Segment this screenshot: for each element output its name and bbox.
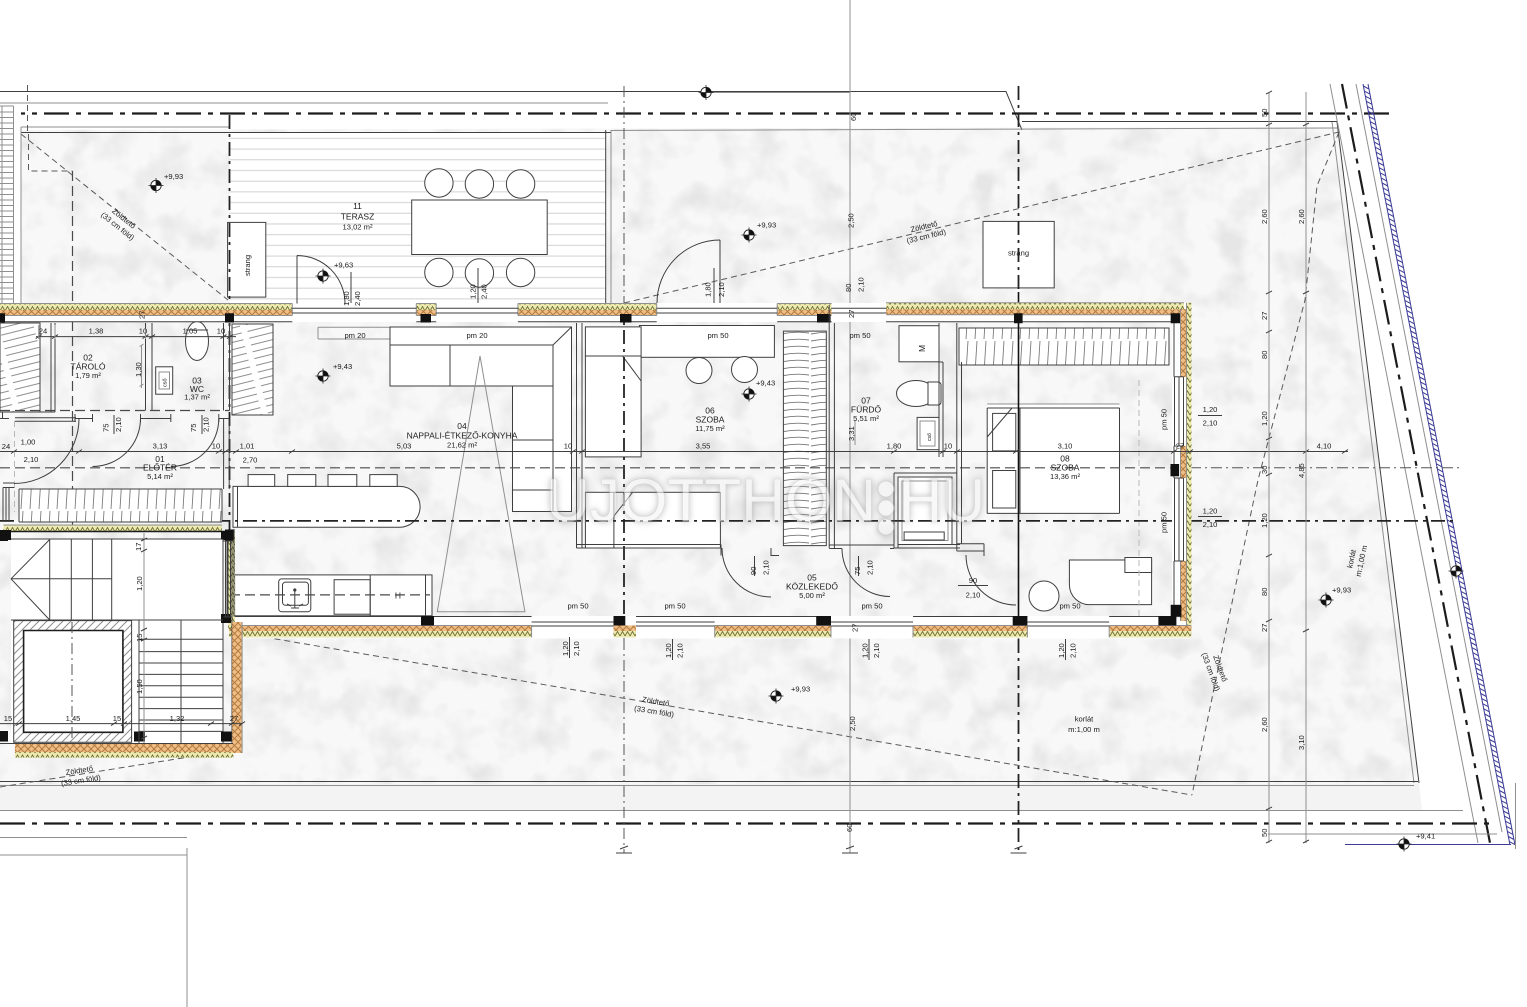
svg-text:80: 80 [844, 284, 853, 292]
svg-text:1,20: 1,20 [135, 576, 144, 591]
svg-text:75: 75 [189, 424, 198, 432]
svg-text:50: 50 [1260, 829, 1269, 837]
svg-text:27: 27 [1260, 312, 1269, 320]
svg-text:60: 60 [845, 824, 854, 832]
svg-text:3,55: 3,55 [696, 442, 711, 451]
svg-text:pm 50: pm 50 [567, 602, 588, 611]
svg-text:15: 15 [4, 714, 12, 723]
svg-text:3,13: 3,13 [153, 442, 168, 451]
svg-text:strang: strang [243, 255, 252, 276]
svg-text:2,10: 2,10 [1203, 520, 1218, 529]
svg-text:1,37 m²: 1,37 m² [184, 393, 210, 402]
svg-text:2,50: 2,50 [848, 716, 857, 731]
svg-text:pm 50: pm 50 [1160, 409, 1169, 430]
svg-text:1,20: 1,20 [1260, 411, 1269, 426]
svg-text:27: 27 [138, 311, 147, 319]
svg-text:1,20: 1,20 [1057, 643, 1066, 658]
svg-text:2,10: 2,10 [676, 643, 685, 658]
svg-text:2,10: 2,10 [857, 277, 866, 292]
svg-text:korlát: korlát [1075, 715, 1094, 724]
svg-text:50: 50 [1260, 109, 1269, 117]
svg-text:+9,93: +9,93 [164, 172, 183, 181]
svg-text:+9,93: +9,93 [791, 685, 810, 694]
svg-text:1,50: 1,50 [135, 679, 144, 694]
svg-text:90: 90 [749, 567, 758, 575]
svg-text:3,10: 3,10 [1297, 735, 1306, 750]
svg-text:2,10: 2,10 [966, 591, 981, 600]
svg-text:pm 20: pm 20 [466, 331, 487, 340]
svg-text:3,31: 3,31 [847, 426, 856, 441]
svg-text:+9,43: +9,43 [333, 362, 352, 371]
svg-text:ELŐTÉR: ELŐTÉR [143, 463, 177, 473]
svg-text:cső: cső [927, 433, 933, 441]
svg-text:KÖZLEKEDŐ: KÖZLEKEDŐ [786, 582, 838, 592]
svg-text:pm 50: pm 50 [849, 331, 870, 340]
svg-text:2,60: 2,60 [1297, 209, 1306, 224]
svg-text:FÜRDŐ: FÜRDŐ [851, 405, 882, 415]
svg-text:13,36 m²: 13,36 m² [1050, 472, 1080, 481]
svg-text:2,10: 2,10 [872, 643, 881, 658]
svg-text:pm 50: pm 50 [664, 602, 685, 611]
svg-text:pm 50: pm 50 [1059, 602, 1080, 611]
svg-text:1,01: 1,01 [240, 442, 255, 451]
svg-text:21,62 m²: 21,62 m² [447, 441, 477, 450]
svg-text:4,10: 4,10 [1317, 442, 1332, 451]
svg-text:3,10: 3,10 [1058, 442, 1073, 451]
svg-text:5,03: 5,03 [397, 442, 412, 451]
svg-text:2,40: 2,40 [480, 284, 489, 299]
svg-text:10: 10 [212, 442, 220, 451]
svg-text:2,60: 2,60 [1260, 209, 1269, 224]
svg-text:m:1,00 m: m:1,00 m [1068, 725, 1100, 734]
svg-text:pm 50: pm 50 [861, 602, 882, 611]
svg-text:cső: cső [163, 378, 169, 387]
svg-text:5,51 m²: 5,51 m² [853, 414, 879, 423]
svg-text:1,80: 1,80 [887, 442, 902, 451]
svg-text:1,20: 1,20 [469, 284, 478, 299]
svg-text:30: 30 [1260, 466, 1269, 474]
svg-text:+9,43: +9,43 [756, 379, 775, 388]
svg-text:11,75 m²: 11,75 m² [695, 424, 725, 433]
svg-text:2,50: 2,50 [847, 213, 856, 228]
svg-text:75: 75 [853, 567, 862, 575]
svg-text:2,10: 2,10 [1069, 643, 1078, 658]
svg-text:27: 27 [1260, 624, 1269, 632]
svg-text:1,30: 1,30 [134, 362, 143, 377]
svg-text:1,80: 1,80 [704, 282, 713, 297]
svg-text:TERASZ: TERASZ [341, 212, 375, 222]
svg-text:pm 50: pm 50 [707, 331, 728, 340]
svg-text:2,10: 2,10 [24, 455, 39, 464]
svg-text:1,20: 1,20 [1203, 405, 1218, 414]
svg-text:1,00: 1,00 [21, 438, 36, 447]
svg-text:2,70: 2,70 [243, 456, 258, 465]
svg-text:27: 27 [1176, 442, 1184, 451]
svg-text:2,60: 2,60 [1260, 717, 1269, 732]
svg-text:2,10: 2,10 [717, 282, 726, 297]
svg-text:pm 50: pm 50 [1160, 512, 1169, 533]
svg-text:1,20: 1,20 [664, 643, 673, 658]
svg-text:+9,63: +9,63 [334, 261, 353, 270]
svg-text:2,10: 2,10 [866, 560, 875, 575]
svg-text:1,80: 1,80 [342, 291, 351, 306]
svg-text:2,10: 2,10 [1203, 419, 1218, 428]
svg-text:M: M [917, 345, 927, 352]
svg-text:1,05: 1,05 [183, 327, 198, 336]
svg-text:+9,41: +9,41 [1416, 832, 1435, 841]
svg-text:2,10: 2,10 [572, 641, 581, 656]
svg-text:SZOBA: SZOBA [1051, 463, 1080, 473]
svg-text:27: 27 [230, 714, 238, 723]
svg-text:27: 27 [851, 624, 860, 632]
svg-text:1,32: 1,32 [170, 714, 185, 723]
svg-text:1,79 m²: 1,79 m² [75, 371, 101, 380]
svg-text:1,20: 1,20 [1260, 513, 1269, 528]
svg-text:TÁROLÓ: TÁROLÓ [71, 362, 106, 372]
svg-text:1,20: 1,20 [1203, 507, 1218, 516]
svg-text:10: 10 [139, 327, 147, 336]
svg-text:10: 10 [217, 327, 225, 336]
svg-text:NAPPALI-ÉTKEZŐ-KONYHA: NAPPALI-ÉTKEZŐ-KONYHA [407, 431, 518, 441]
svg-text:2,40: 2,40 [353, 291, 362, 306]
svg-text:17: 17 [134, 543, 143, 551]
svg-text:15: 15 [135, 634, 144, 642]
svg-text:1,38: 1,38 [89, 327, 104, 336]
svg-text:2,10: 2,10 [114, 417, 123, 432]
svg-text:1,20: 1,20 [861, 643, 870, 658]
svg-text:HU: HU [899, 467, 985, 534]
svg-text:4,85: 4,85 [1297, 463, 1306, 478]
svg-text:80: 80 [1260, 588, 1269, 596]
svg-text:24: 24 [39, 327, 47, 336]
svg-text:2,10: 2,10 [202, 417, 211, 432]
svg-text:60: 60 [849, 113, 858, 121]
svg-text:1,20: 1,20 [561, 641, 570, 656]
svg-text:24: 24 [2, 442, 10, 451]
svg-text:+9,93: +9,93 [1332, 586, 1351, 595]
svg-text:80: 80 [1260, 351, 1269, 359]
svg-text:04: 04 [457, 421, 467, 431]
svg-text:11: 11 [353, 201, 362, 211]
svg-text:2,10: 2,10 [762, 560, 771, 575]
svg-text:27: 27 [847, 310, 856, 318]
svg-text:1,45: 1,45 [66, 714, 81, 723]
svg-text:+9,93: +9,93 [757, 221, 776, 230]
svg-text:SZOBA: SZOBA [696, 415, 725, 425]
svg-text:pm 20: pm 20 [344, 331, 365, 340]
svg-text:10: 10 [944, 442, 952, 451]
svg-text:15: 15 [113, 714, 121, 723]
svg-text:5,14 m²: 5,14 m² [147, 472, 173, 481]
svg-text:10: 10 [564, 442, 572, 451]
svg-text:UJOTTHON: UJOTTHON [546, 467, 876, 534]
svg-text:75: 75 [102, 424, 111, 432]
svg-text:90: 90 [969, 576, 977, 585]
svg-text:5,00 m²: 5,00 m² [799, 591, 825, 600]
svg-text:13,02 m²: 13,02 m² [343, 223, 373, 232]
